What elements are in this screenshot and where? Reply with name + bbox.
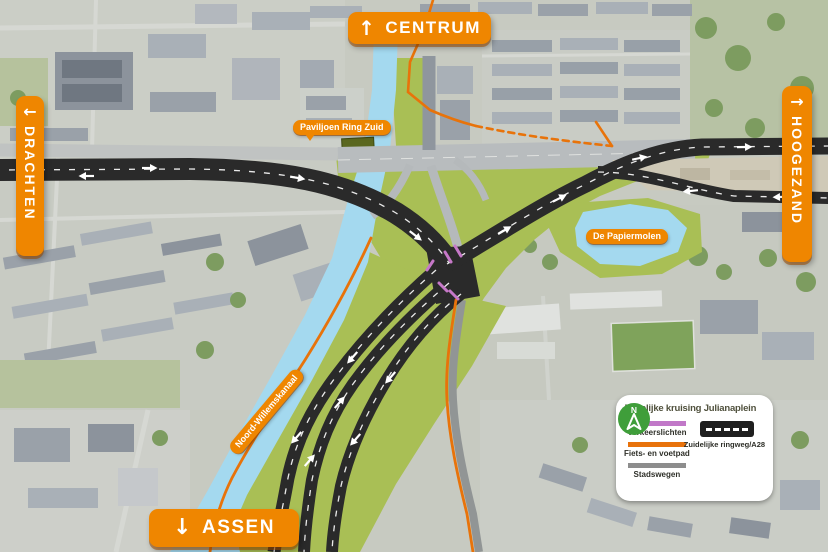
label-paviljoen-ring-zuid: Paviljoen Ring Zuid [293,120,391,135]
legend-swatch-city-roads [628,463,686,468]
legend-label-ring-road: Zuidelijke ringweg/A28 [684,440,765,449]
sign-centrum: ↑ CENTRUM [348,12,491,44]
legend: Tijdelijke kruising Julianaplein Verkeer… [616,395,773,501]
sign-drachten-label: DRACHTEN [22,126,38,221]
sign-assen-label: ASSEN [202,517,275,539]
legend-label-city-roads: Stadswegen [624,470,690,479]
road-dash-icon [706,428,748,431]
legend-label-bike-path: Fiets- en voetpad [624,449,690,458]
arrow-up-icon: ↑ [358,18,376,38]
legend-swatch-ring-road [700,421,754,437]
sign-centrum-label: CENTRUM [385,18,481,38]
map-root: ↑ CENTRUM ← DRACHTEN → HOOGEZAND ↓ ASSEN… [0,0,828,552]
label-de-papiermolen: De Papiermolen [586,229,668,244]
sign-hoogezand: → HOOGEZAND [782,86,812,262]
compass-icon: N [616,399,652,439]
arrow-right-icon: → [790,94,803,110]
sign-assen: ↓ ASSEN [149,509,299,547]
sign-drachten: ← DRACHTEN [16,96,44,256]
arrow-left-icon: ← [23,104,36,120]
sign-hoogezand-label: HOOGEZAND [789,116,805,225]
legend-swatch-bike-path [628,442,686,447]
sports-field [611,321,695,372]
arrow-down-icon: ↓ [173,517,193,539]
